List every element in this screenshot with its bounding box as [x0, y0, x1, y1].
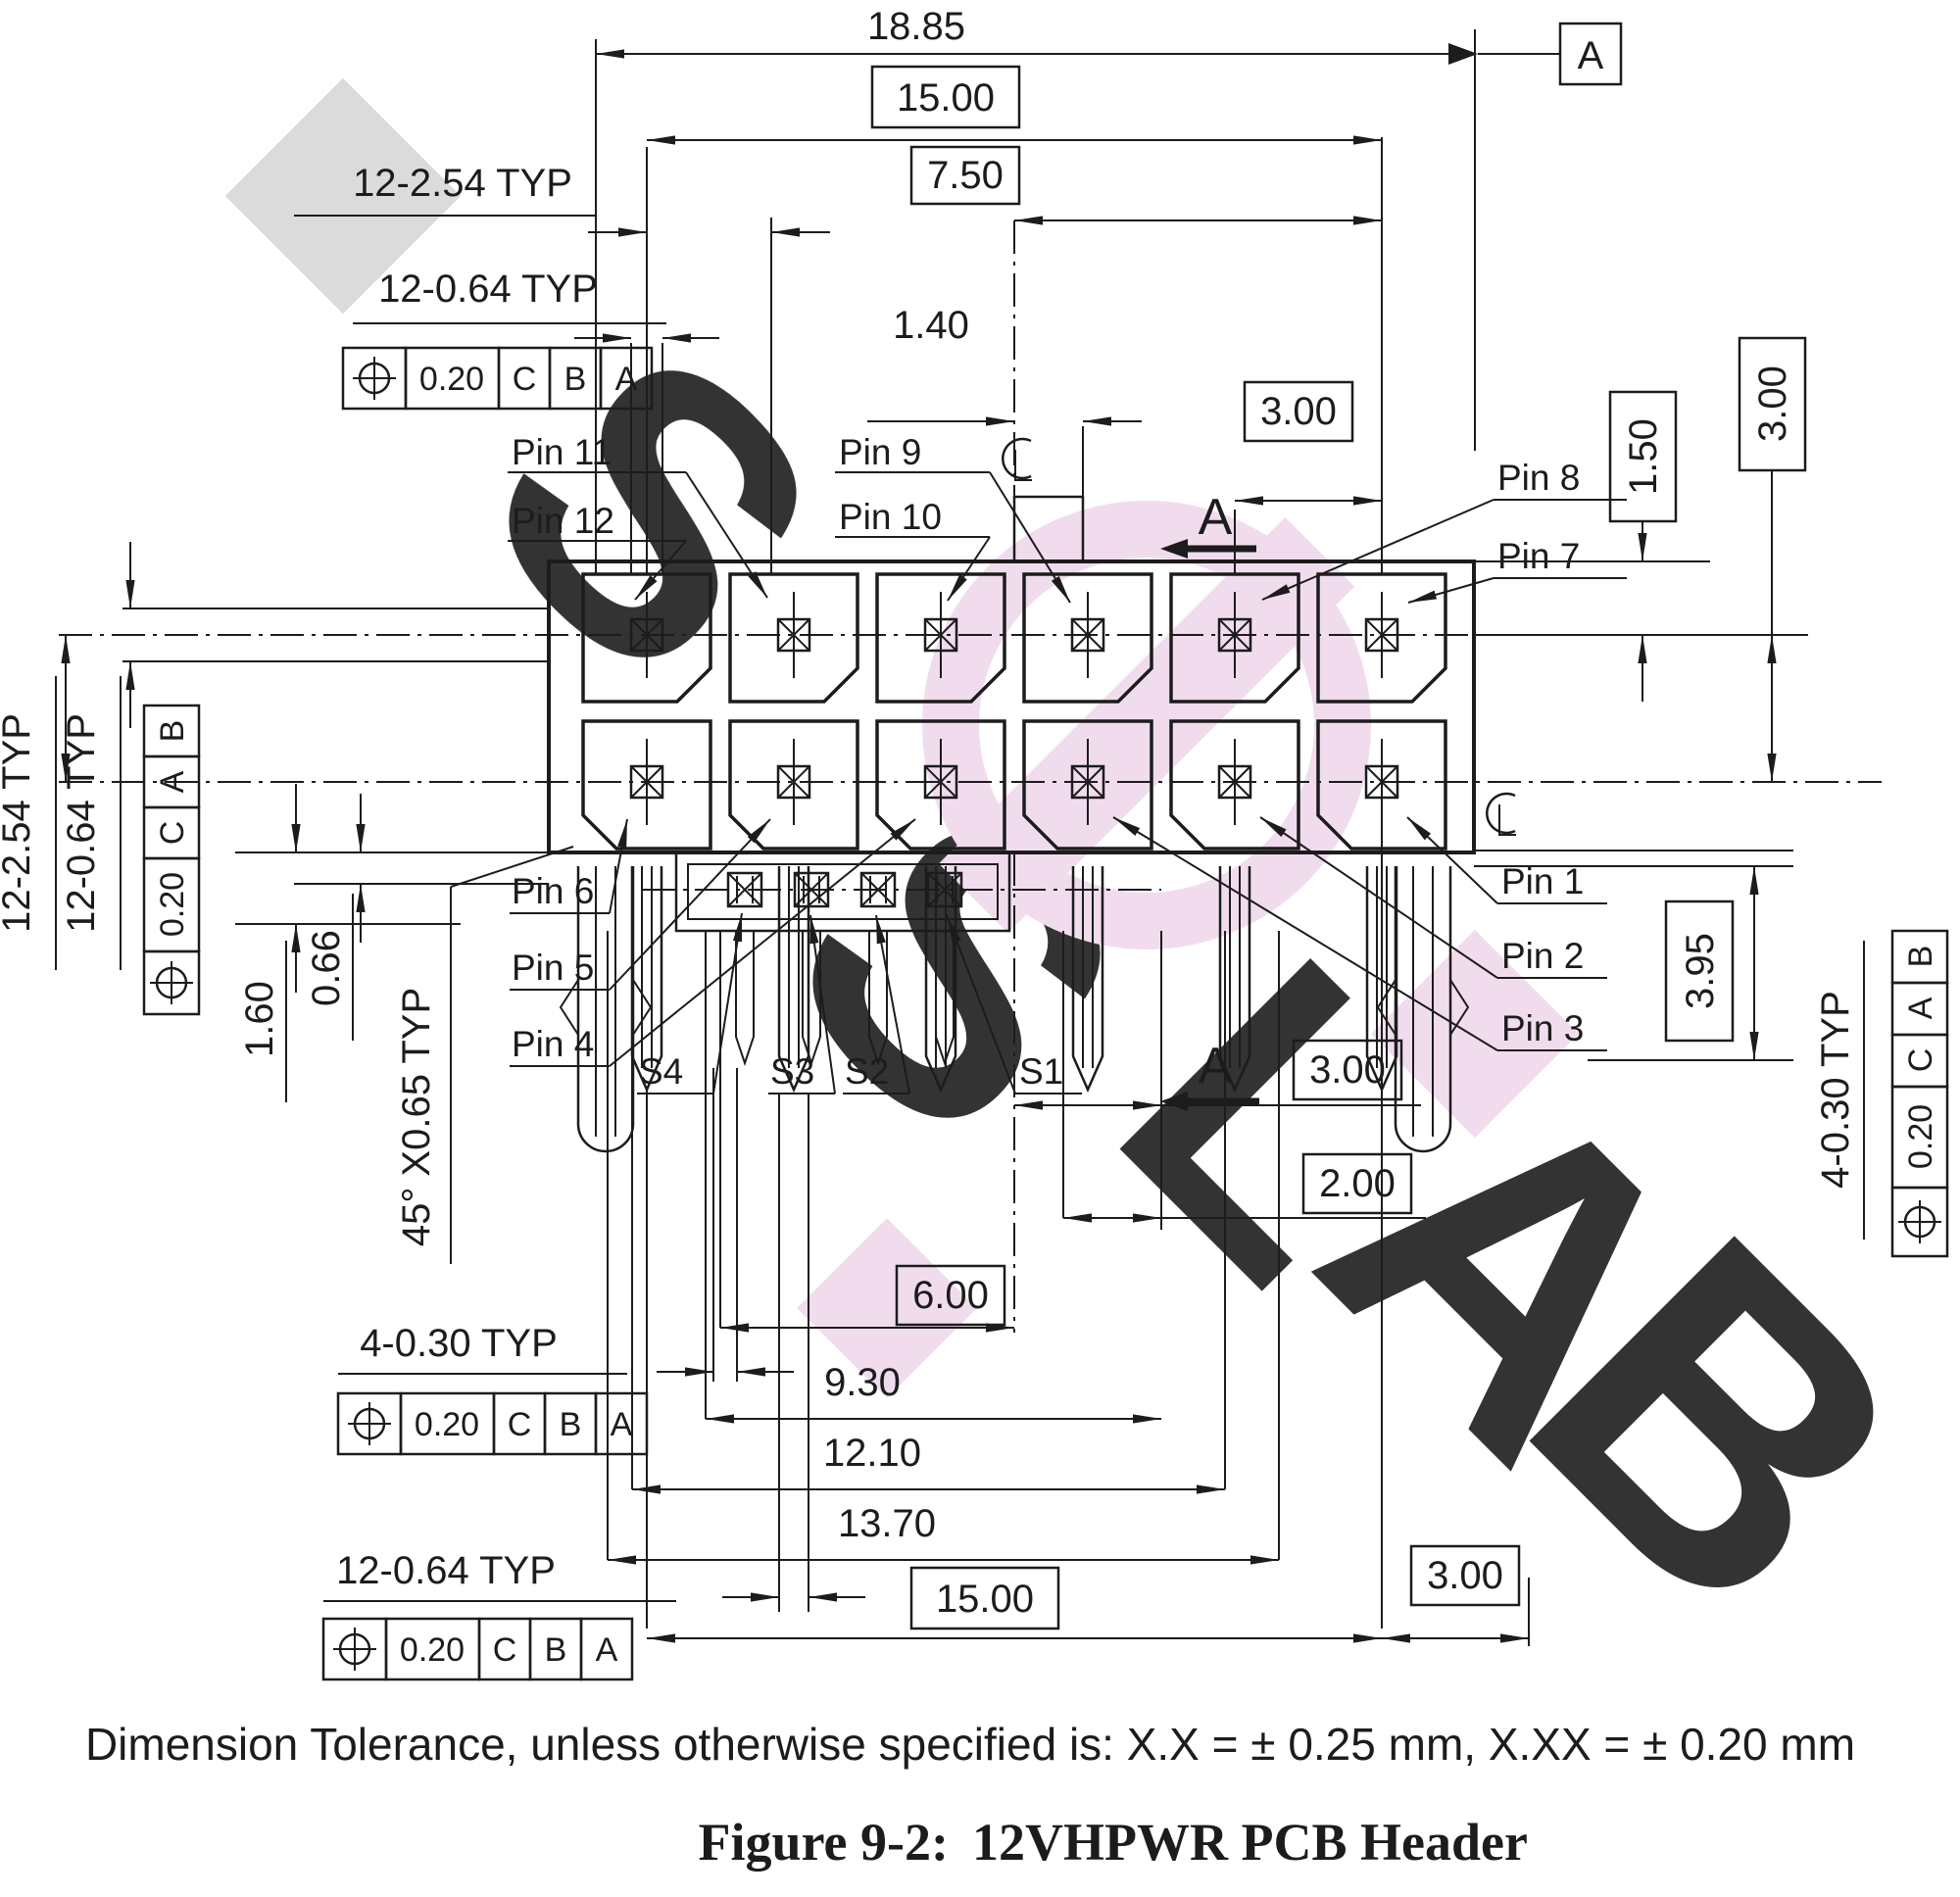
pin-1-label: Pin 1: [1501, 861, 1584, 901]
label-12-0-64-typ-bottom: 12-0.64 TYP: [336, 1549, 556, 1592]
sideband-s4-label: S4: [639, 1051, 683, 1092]
dim-12-10: 12.10: [823, 1432, 921, 1475]
dimension-13-70: 13.70: [608, 1502, 1279, 1560]
centerline-symbol: [1487, 794, 1516, 835]
fcf-tolerance: 0.20: [154, 872, 191, 937]
fcf-tolerance: 0.20: [419, 361, 484, 398]
section-a-top-label: A: [1199, 489, 1233, 546]
pcb-header-drawing: S S L A B A 18.85 15.00: [0, 0, 1960, 1897]
dim-2-00: 2.00: [1319, 1162, 1396, 1205]
figure-label: Figure 9-2:: [699, 1813, 949, 1872]
pin-12-label: Pin 12: [512, 501, 614, 541]
fcf-datum-2: A: [1902, 997, 1939, 1019]
dim-15-00-bottom: 15.00: [936, 1578, 1034, 1621]
position-symbol-icon: [150, 961, 193, 1004]
fcf-tolerance: 0.20: [415, 1406, 479, 1443]
dimension-pin-width-typ-bottom: 12-0.64 TYP: [323, 1549, 865, 1601]
dim-chamfer: 45° X0.65 TYP: [395, 988, 438, 1246]
pin-11-label: Pin 11: [512, 432, 612, 472]
pin-9-label: Pin 9: [839, 432, 921, 472]
fcf-datum-3: B: [1902, 946, 1939, 968]
dimension-half-span: 7.50: [911, 147, 1382, 220]
pin-8-label: Pin 8: [1497, 458, 1580, 498]
fcf-datum-1: C: [1902, 1048, 1939, 1073]
dim-3-95: 3.95: [1679, 933, 1722, 1009]
dim-3-00-right: 3.00: [1751, 365, 1794, 442]
dimension-12-10: 12.10: [632, 1432, 1225, 1489]
dim-6-00: 6.00: [912, 1274, 989, 1317]
fcf-datum-3: A: [615, 361, 638, 398]
dim-1-50: 1.50: [1622, 418, 1665, 495]
label-4-0-30-typ-right: 4-0.30 TYP: [1814, 991, 1857, 1189]
label-12-0-64-typ: 12-0.64 TYP: [378, 268, 598, 311]
fcf-datum-1: C: [154, 821, 191, 846]
fcf-datum-1: C: [508, 1406, 532, 1443]
fcf-tolerance: 0.20: [400, 1631, 465, 1669]
pin-5-label: Pin 5: [512, 948, 594, 988]
pin-10-label: Pin 10: [839, 497, 942, 537]
tolerance-note: Dimension Tolerance, unless otherwise sp…: [85, 1719, 1855, 1770]
dimension-edge-right-bottom: 3.00: [1382, 1546, 1529, 1638]
datum-a-arrow: [1448, 43, 1478, 65]
fcf-datum-2: B: [545, 1631, 567, 1669]
fcf-left: B A C 0.20: [144, 705, 199, 1014]
dim-18-85: 18.85: [867, 5, 965, 48]
dim-3-00-top: 3.00: [1260, 390, 1337, 433]
position-symbol-icon: [353, 357, 396, 400]
label-4-0-30-typ: 4-0.30 TYP: [360, 1322, 558, 1365]
fcf-bottom-pin: 0.20 C B A: [323, 1619, 632, 1679]
fcf-datum-1: C: [513, 361, 537, 398]
pin-2-label: Pin 2: [1501, 936, 1584, 976]
dim-0-66: 0.66: [305, 930, 348, 1006]
sideband-s3-label: S3: [770, 1051, 814, 1092]
fcf-datum-2: B: [560, 1406, 582, 1443]
position-symbol-icon: [348, 1402, 391, 1445]
fcf-bottom-hole: 0.20 C B A: [338, 1393, 647, 1454]
fcf-datum-2: A: [154, 770, 191, 793]
section-a-bottom-label: A: [1199, 1038, 1233, 1094]
dim-1-60: 1.60: [238, 981, 281, 1057]
pin-3-label: Pin 3: [1501, 1008, 1584, 1048]
centerline-symbol: [1003, 439, 1032, 480]
dim-3-00-bottom: 3.00: [1427, 1554, 1503, 1597]
label-12-2-54-typ-left: 12-2.54 TYP: [0, 713, 38, 933]
position-symbol-icon: [1898, 1200, 1941, 1243]
pin-7-label: Pin 7: [1497, 536, 1580, 576]
dimension-pin-span-bottom: 15.00: [647, 1568, 1382, 1638]
dim-9-30: 9.30: [824, 1361, 901, 1404]
fcf-tolerance: 0.20: [1902, 1104, 1939, 1169]
fcf-datum-3: B: [154, 720, 191, 743]
dim-13-70: 13.70: [838, 1502, 936, 1545]
fcf-datum-1: C: [493, 1631, 517, 1669]
fcf-datum-3: A: [611, 1406, 633, 1443]
dim-3-00-mid: 3.00: [1309, 1048, 1386, 1092]
dimension-hole-typ-bottom: 4-0.30 TYP: [338, 1322, 794, 1374]
fcf-datum-2: B: [564, 361, 587, 398]
pin-6-label: Pin 6: [512, 871, 594, 911]
dim-15-00-top: 15.00: [897, 76, 995, 120]
position-symbol-icon: [333, 1628, 376, 1671]
datum-a-label: A: [1578, 34, 1604, 77]
figure-title: 12VHPWR PCB Header: [972, 1813, 1528, 1872]
dim-1-40: 1.40: [893, 304, 969, 347]
dim-7-50: 7.50: [927, 154, 1004, 197]
fcf-right: B A C 0.20: [1892, 931, 1947, 1256]
sideband-s2-label: S2: [845, 1051, 889, 1092]
watermark-letter: S: [408, 265, 903, 759]
pin-4-label: Pin 4: [512, 1024, 594, 1064]
label-12-2-54-typ: 12-2.54 TYP: [353, 162, 572, 205]
label-12-0-64-typ-left: 12-0.64 TYP: [60, 713, 103, 933]
dimension-9-30: 9.30: [706, 1361, 1161, 1419]
sideband-s1-label: S1: [1019, 1051, 1063, 1092]
fcf-datum-3: A: [596, 1631, 618, 1669]
